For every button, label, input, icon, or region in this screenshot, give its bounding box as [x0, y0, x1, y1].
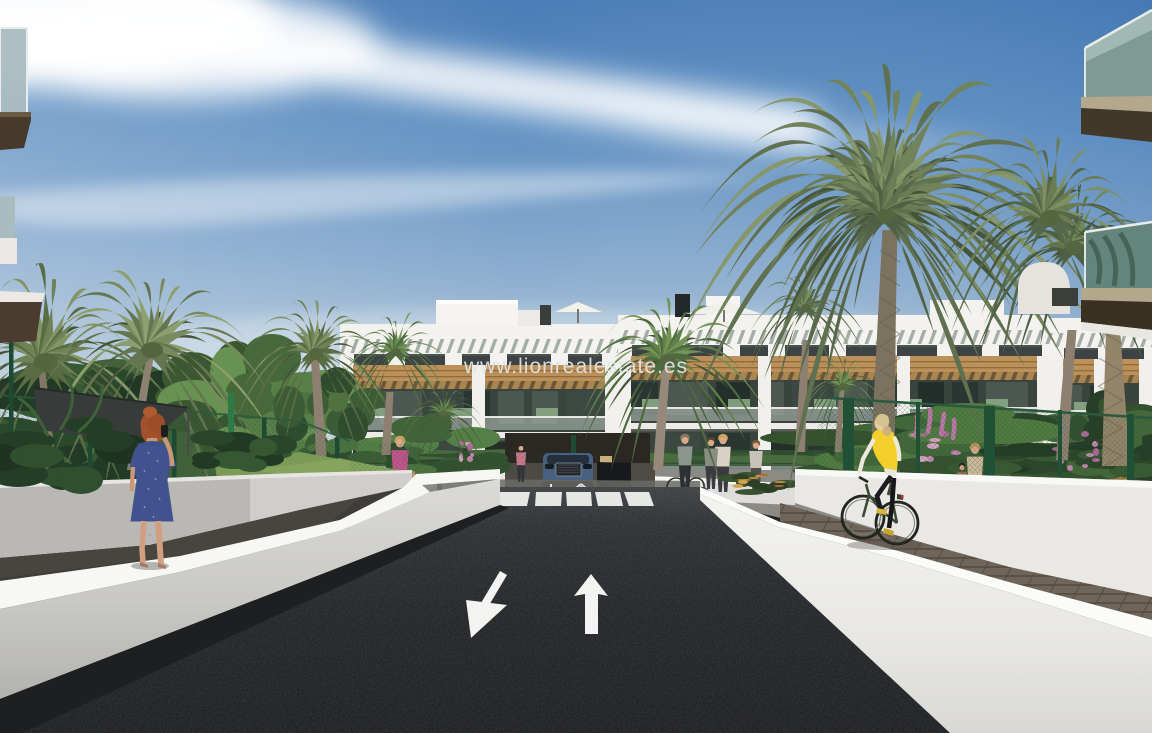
svg-text:www.lionrealestate.es: www.lionrealestate.es: [463, 355, 688, 378]
